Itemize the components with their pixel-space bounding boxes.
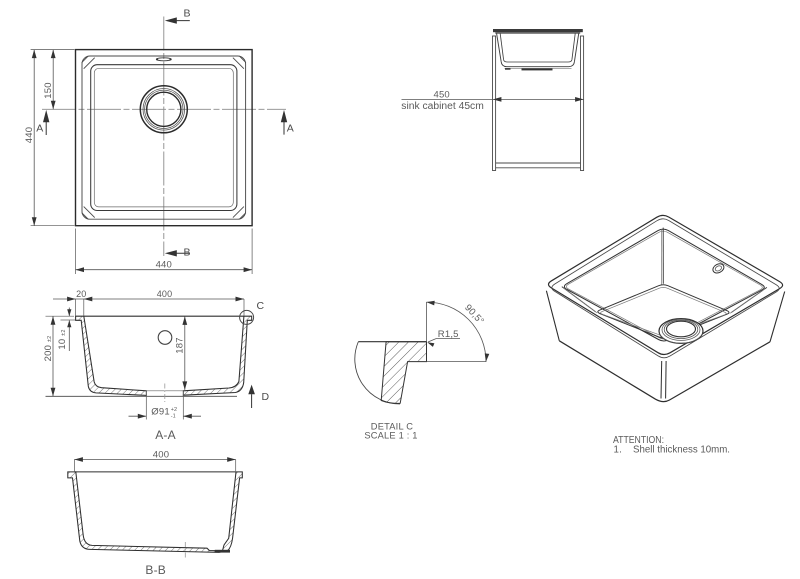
svg-text:B-B: B-B (145, 563, 166, 577)
svg-text:450: 450 (433, 89, 449, 100)
svg-text:Ø91: Ø91 (151, 406, 170, 417)
svg-text:440: 440 (156, 260, 172, 271)
svg-text:-1: -1 (171, 413, 176, 419)
svg-text:+2: +2 (171, 407, 177, 413)
svg-text:400: 400 (157, 289, 173, 299)
svg-text:SCALE 1 : 1: SCALE 1 : 1 (364, 430, 417, 440)
svg-text:A-A: A-A (155, 428, 176, 442)
svg-text:440: 440 (24, 127, 35, 143)
svg-text:D: D (262, 391, 270, 403)
svg-text:20: 20 (76, 289, 86, 299)
svg-text:Shell thickness 10mm.: Shell thickness 10mm. (633, 445, 730, 456)
svg-text:150: 150 (43, 82, 54, 98)
svg-text:1.: 1. (614, 445, 622, 456)
svg-text:A: A (36, 122, 43, 134)
svg-text:B: B (184, 7, 191, 19)
svg-text:sink cabinet 45cm: sink cabinet 45cm (401, 101, 484, 112)
svg-text:187: 187 (175, 337, 186, 353)
svg-text:C: C (257, 300, 265, 312)
svg-text:B: B (184, 247, 191, 259)
svg-text:A: A (287, 122, 294, 134)
svg-text:400: 400 (153, 450, 169, 461)
